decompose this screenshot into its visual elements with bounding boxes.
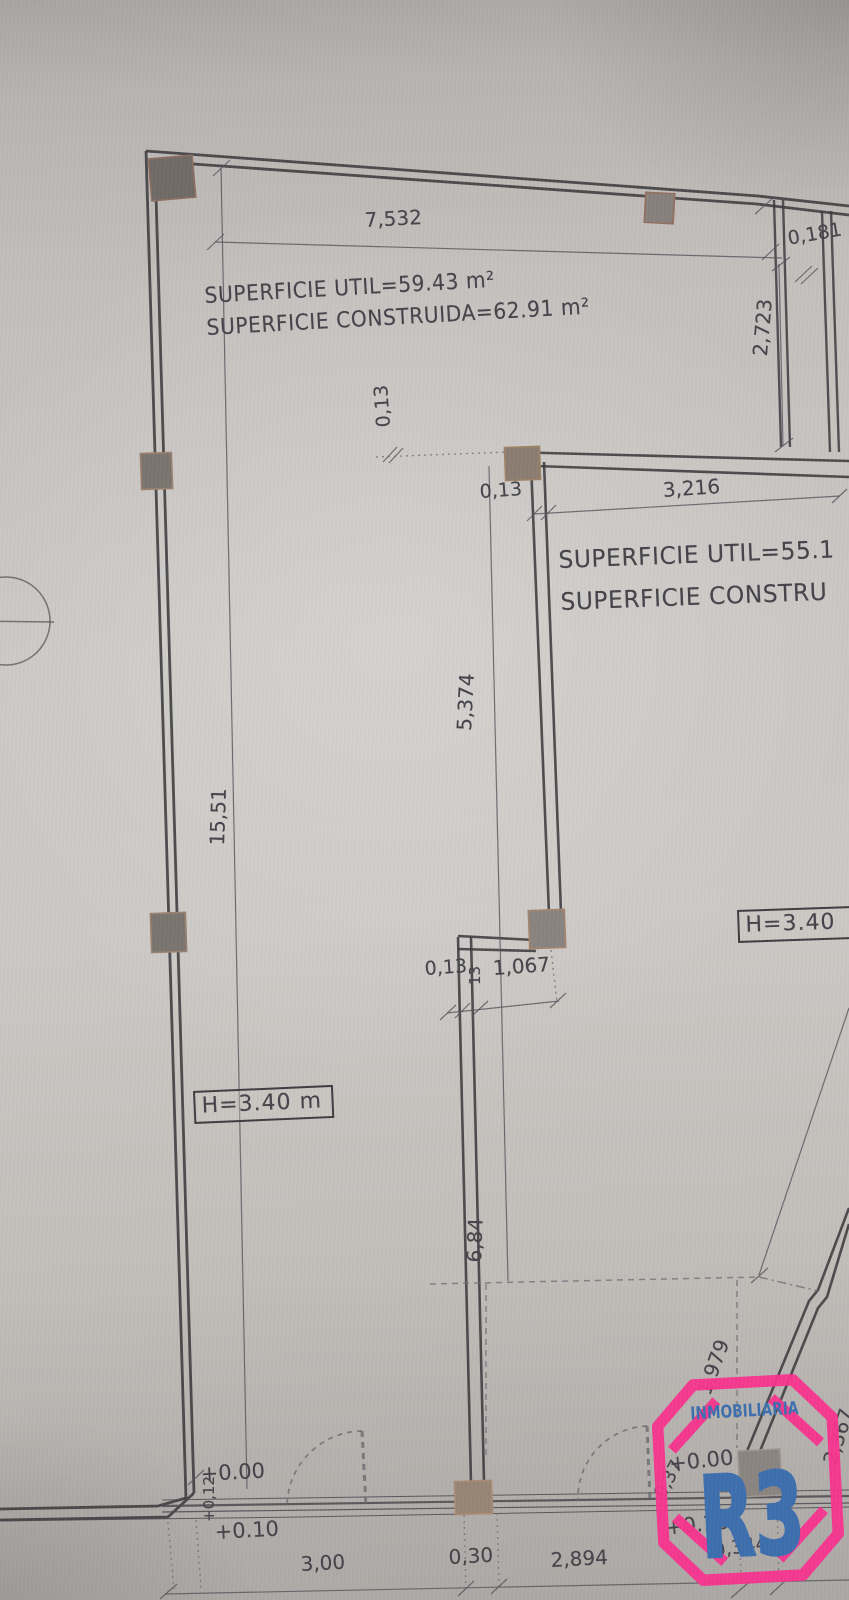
- door-arc: [578, 1426, 647, 1501]
- pillar: [150, 912, 186, 952]
- dim-partition-lower-label: 6,84: [462, 1217, 488, 1262]
- unit-a-height-box: H=3.40 m: [193, 1085, 335, 1124]
- inmobiliaria-r3-logo: INMOBILIARIA R3: [649, 1371, 848, 1589]
- dim-niche-height-label: 2,723: [748, 298, 777, 357]
- dim-top-width-label: 7,532: [364, 205, 422, 232]
- pillar: [454, 1480, 492, 1514]
- unit-b-height-box: H=3.40: [737, 905, 849, 943]
- pillar: [504, 446, 540, 480]
- dim-partition-upper-label: 5,374: [452, 673, 479, 731]
- door-leaf: [647, 1426, 650, 1500]
- dim-bottom-a-label: 3,00: [300, 1550, 346, 1576]
- edge-circle-symbol: [0, 577, 54, 665]
- dim-bottom-c-label: 2,894: [550, 1545, 608, 1572]
- pillar: [140, 452, 172, 489]
- door-leaf: [362, 1431, 366, 1506]
- outer-walls: [0, 151, 849, 1520]
- dim-thk-top-label: 0,13: [370, 384, 395, 428]
- pillar: [528, 909, 565, 948]
- dim-span-right-label: 3,216: [662, 474, 721, 502]
- pillars: [140, 155, 782, 1514]
- dim-corner-offset-label: 1,067: [492, 952, 551, 980]
- door-arc: [287, 1431, 362, 1507]
- logo-tagline: INMOBILIARIA: [690, 1399, 799, 1425]
- dim-left-height-label: 15,51: [205, 788, 231, 846]
- floor-plan-photo: SUPERFICIE UTIL=59.43 m² SUPERFICIE CONS…: [0, 0, 849, 1600]
- level-step-left-label: +0,12: [200, 1476, 218, 1522]
- pillar: [644, 192, 675, 223]
- dim-thk-mid-label: 0,13: [479, 478, 523, 503]
- level-ten-left-label: +0.10: [214, 1517, 280, 1544]
- pillar: [148, 155, 195, 201]
- dim-thk-corner-small-label: 13: [466, 966, 484, 985]
- dim-bottom-b-label: 0,30: [448, 1543, 494, 1569]
- dim-thk-corner-label: 0,13: [424, 955, 468, 980]
- logo-mark: R3: [697, 1449, 808, 1584]
